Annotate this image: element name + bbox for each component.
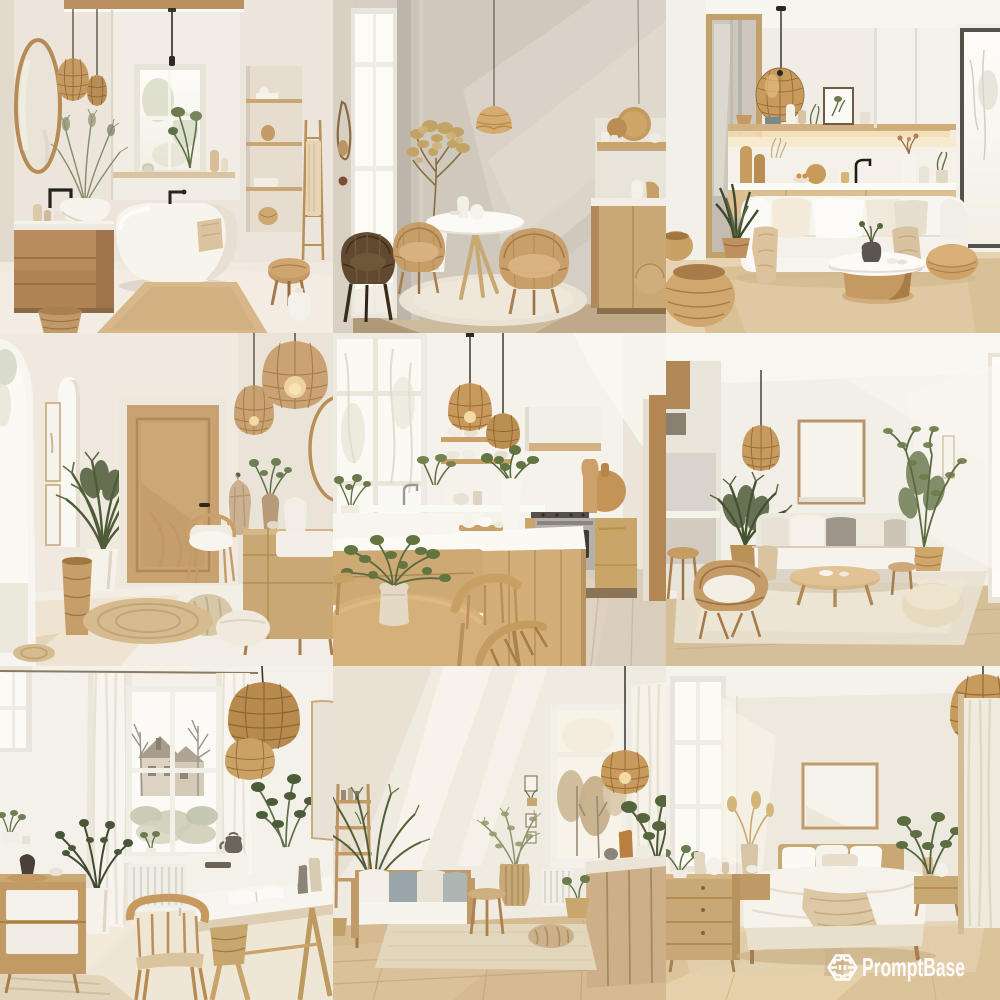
svg-text:PromptBase: PromptBase xyxy=(862,952,965,982)
